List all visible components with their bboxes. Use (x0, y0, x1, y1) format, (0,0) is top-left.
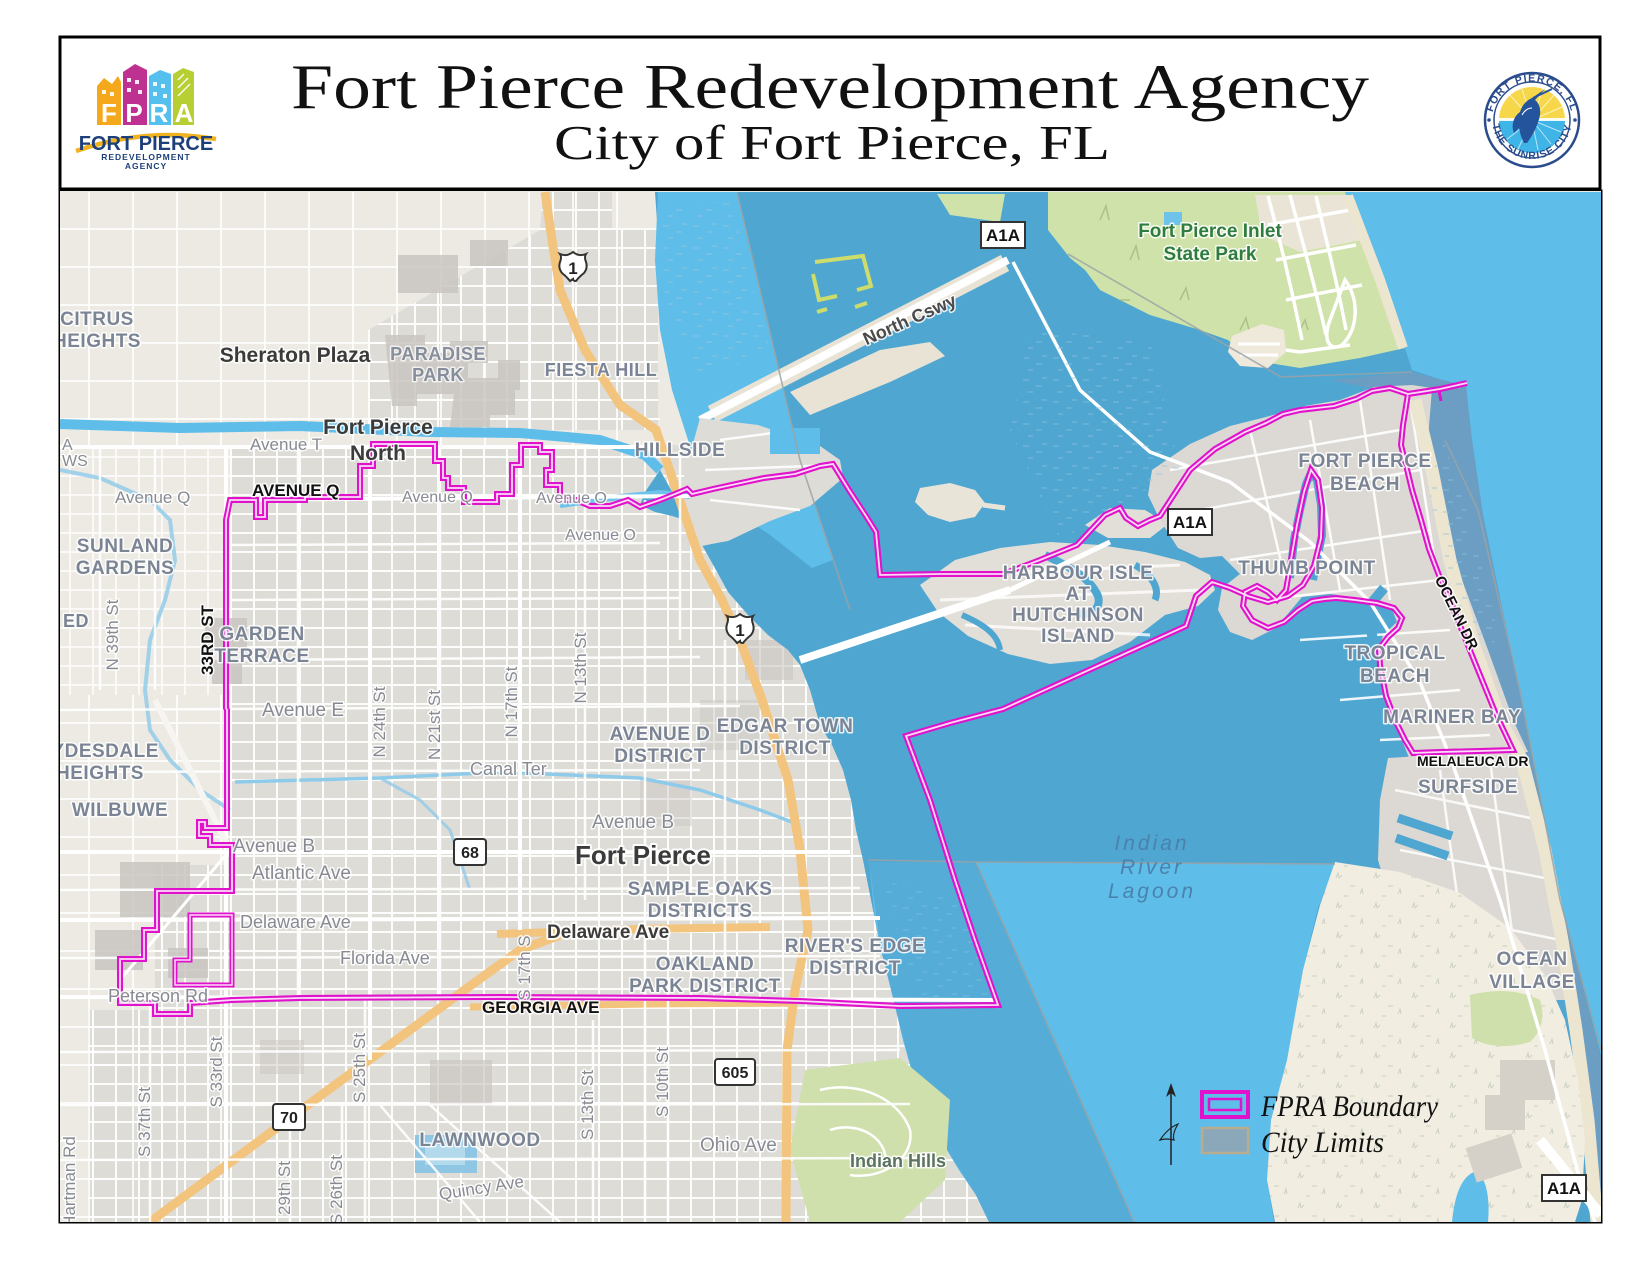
svg-text:DISTRICT: DISTRICT (739, 738, 831, 759)
svg-text:Florida Ave: Florida Ave (340, 948, 430, 968)
svg-text:DISTRICT: DISTRICT (809, 958, 901, 979)
svg-text:Avenue Q: Avenue Q (115, 488, 190, 507)
svg-text:AVENUE Q: AVENUE Q (252, 481, 340, 500)
svg-text:PARK DISTRICT: PARK DISTRICT (629, 976, 781, 997)
svg-text:F: F (101, 98, 117, 128)
svg-text:N 13th St: N 13th St (571, 632, 590, 703)
svg-text:BEACH: BEACH (1360, 666, 1430, 687)
svg-text:Avenue O: Avenue O (565, 527, 636, 544)
svg-text:GARDENS: GARDENS (76, 558, 175, 579)
svg-text:Delaware Ave: Delaware Ave (240, 912, 351, 932)
svg-text:TERRACE: TERRACE (214, 646, 309, 667)
svg-text:City Limits: City Limits (1261, 1126, 1384, 1159)
svg-text:A: A (62, 437, 73, 454)
svg-text:Ohio Ave: Ohio Ave (700, 1135, 777, 1156)
svg-text:State Park: State Park (1164, 244, 1257, 265)
svg-text:RIVER'S EDGE: RIVER'S EDGE (785, 936, 925, 957)
svg-text:DISTRICTS: DISTRICTS (648, 901, 753, 922)
svg-text:MARINER BAY: MARINER BAY (1383, 707, 1521, 728)
svg-text:ED: ED (63, 611, 89, 631)
svg-text:P: P (125, 98, 142, 128)
svg-text:605: 605 (722, 1065, 749, 1082)
svg-text:A1A: A1A (1547, 1179, 1581, 1198)
svg-text:North: North (350, 442, 406, 465)
svg-text:HARBOUR ISLE: HARBOUR ISLE (1003, 563, 1154, 584)
svg-text:33RD ST: 33RD ST (198, 604, 217, 675)
svg-text:70: 70 (280, 1110, 298, 1127)
svg-text:MELALEUCA DR: MELALEUCA DR (1417, 753, 1528, 769)
svg-text:PARK: PARK (412, 365, 464, 385)
svg-text:OCEAN: OCEAN (1496, 949, 1567, 970)
svg-text:HILLSIDE: HILLSIDE (635, 440, 726, 461)
svg-text:Indian: Indian (1114, 832, 1189, 855)
svg-text:River: River (1120, 856, 1184, 879)
svg-text:1: 1 (735, 621, 744, 640)
svg-text:TROPICAL: TROPICAL (1344, 643, 1445, 664)
svg-text:A: A (175, 98, 194, 128)
svg-text:WILBUWE: WILBUWE (72, 800, 168, 821)
svg-text:City of Fort Pierce, FL: City of Fort Pierce, FL (554, 115, 1110, 170)
svg-text:Avenue B: Avenue B (233, 836, 315, 857)
svg-text:A1A: A1A (986, 226, 1020, 245)
svg-text:EDGAR TOWN: EDGAR TOWN (717, 716, 854, 737)
svg-text:S 33rd St: S 33rd St (207, 1036, 226, 1107)
svg-text:Lagoon: Lagoon (1108, 880, 1196, 903)
svg-text:Fort Pierce: Fort Pierce (575, 840, 711, 870)
svg-text:GARDEN: GARDEN (219, 624, 304, 645)
svg-text:ISLAND: ISLAND (1041, 626, 1115, 647)
svg-text:Peterson Rd: Peterson Rd (108, 986, 208, 1006)
svg-text:N 21st St: N 21st St (425, 690, 444, 760)
svg-text:OAKLAND: OAKLAND (656, 954, 755, 975)
svg-text:WS: WS (62, 453, 88, 470)
svg-text:S 17th S: S 17th S (515, 935, 534, 1000)
svg-text:AGENCY: AGENCY (125, 161, 167, 171)
svg-text:HEIGHTS: HEIGHTS (56, 763, 144, 784)
svg-text:THUMB POINT: THUMB POINT (1238, 558, 1375, 579)
svg-text:68: 68 (461, 845, 479, 862)
svg-text:HEIGHTS: HEIGHTS (53, 331, 141, 352)
svg-text:Atlantic Ave: Atlantic Ave (252, 863, 351, 884)
svg-text:AVENUE D: AVENUE D (610, 724, 711, 745)
svg-text:S 13th St: S 13th St (578, 1070, 597, 1140)
svg-text:Indian Hills: Indian Hills (850, 1151, 946, 1171)
svg-text:S 26th St: S 26th St (327, 1155, 346, 1225)
svg-text:R: R (150, 98, 169, 128)
svg-text:N 24th St: N 24th St (370, 686, 389, 757)
svg-text:FIESTA HILL: FIESTA HILL (545, 360, 658, 380)
svg-text:N 39th St: N 39th St (103, 599, 122, 670)
svg-text:HUTCHINSON: HUTCHINSON (1012, 605, 1144, 626)
svg-text:Sheraton Plaza: Sheraton Plaza (220, 344, 371, 367)
svg-text:Canal Ter: Canal Ter (470, 759, 547, 779)
svg-text:CITRUS: CITRUS (60, 309, 134, 330)
svg-text:S 25th St: S 25th St (350, 1033, 369, 1103)
svg-text:Fort Pierce Redevelopment Agen: Fort Pierce Redevelopment Agency (291, 51, 1369, 122)
svg-text:Delaware Ave: Delaware Ave (547, 922, 669, 943)
svg-text:LAWNWOOD: LAWNWOOD (419, 1130, 540, 1151)
svg-text:GEORGIA AVE: GEORGIA AVE (482, 998, 599, 1017)
svg-text:FPRA Boundary: FPRA Boundary (1260, 1090, 1438, 1123)
svg-text:BEACH: BEACH (1330, 474, 1400, 495)
svg-text:AT: AT (1066, 584, 1091, 605)
svg-text:1: 1 (568, 259, 577, 278)
svg-text:PARADISE: PARADISE (390, 344, 486, 364)
svg-text:SURFSIDE: SURFSIDE (1418, 777, 1518, 798)
svg-text:Fort Pierce: Fort Pierce (323, 416, 433, 439)
svg-text:Avenue T: Avenue T (250, 435, 322, 454)
svg-text:29th St: 29th St (275, 1161, 294, 1215)
svg-text:Hartman Rd: Hartman Rd (60, 1136, 79, 1228)
svg-text:FORT PIERCE: FORT PIERCE (1298, 451, 1431, 472)
svg-text:SUNLAND: SUNLAND (77, 536, 173, 557)
svg-text:Fort Pierce Inlet: Fort Pierce Inlet (1138, 221, 1282, 242)
svg-text:Avenue O: Avenue O (536, 490, 607, 507)
svg-text:DISTRICT: DISTRICT (614, 746, 706, 767)
svg-text:S 37th St: S 37th St (135, 1087, 154, 1157)
svg-text:N 17th St: N 17th St (502, 666, 521, 737)
svg-text:VILLAGE: VILLAGE (1489, 972, 1575, 993)
svg-text:S 10th St: S 10th St (653, 1047, 672, 1117)
svg-text:Avenue Q: Avenue Q (402, 489, 473, 506)
svg-text:Avenue E: Avenue E (262, 700, 344, 721)
svg-text:Avenue B: Avenue B (592, 812, 674, 833)
svg-text:SAMPLE OAKS: SAMPLE OAKS (628, 879, 773, 900)
svg-text:A1A: A1A (1173, 513, 1207, 532)
